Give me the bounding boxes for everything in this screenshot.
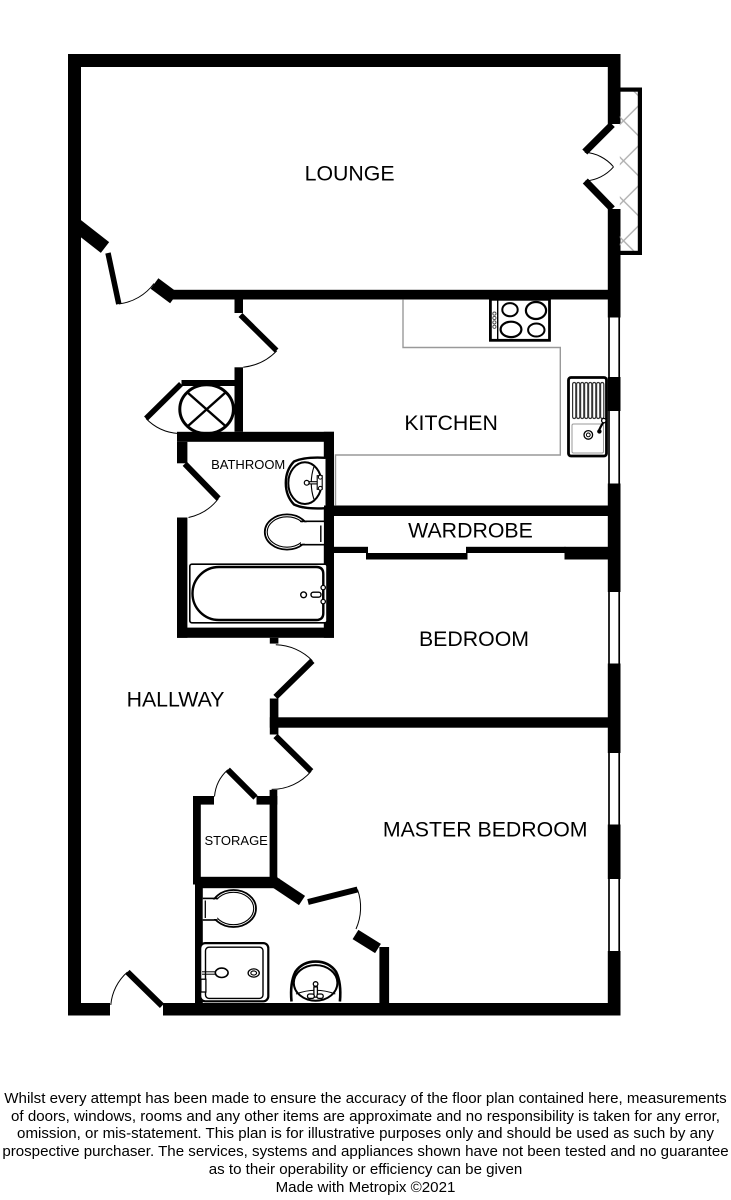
svg-text:HALLWAY: HALLWAY	[127, 688, 225, 712]
svg-text:WARDROBE: WARDROBE	[408, 518, 533, 542]
svg-text:BEDROOM: BEDROOM	[419, 627, 529, 651]
svg-text:LOUNGE: LOUNGE	[305, 162, 395, 186]
svg-text:KITCHEN: KITCHEN	[404, 411, 497, 435]
svg-text:MASTER BEDROOM: MASTER BEDROOM	[383, 818, 588, 842]
svg-text:STORAGE: STORAGE	[205, 833, 269, 848]
svg-text:BATHROOM: BATHROOM	[211, 457, 285, 472]
